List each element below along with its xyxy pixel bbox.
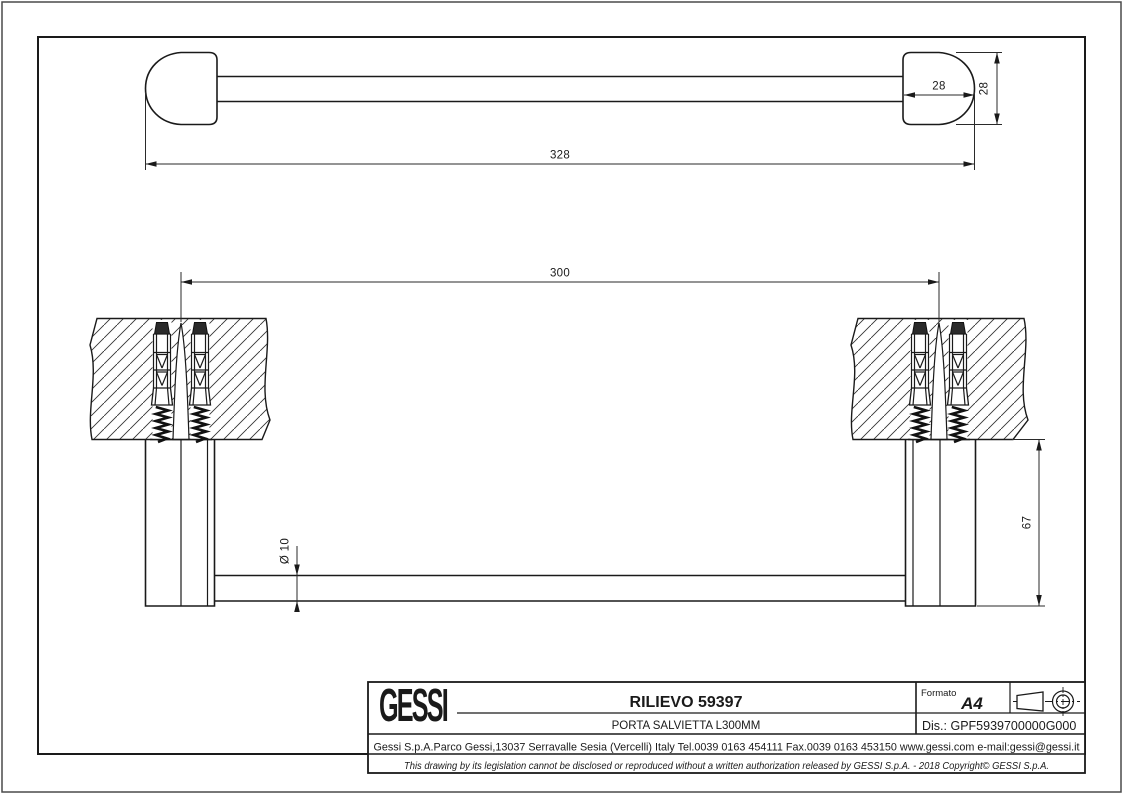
towel-bar-front	[215, 576, 906, 602]
section-view: 300 Ø 10 67	[90, 268, 1045, 613]
wall-section-left	[90, 319, 270, 443]
mounting-post-right	[906, 440, 976, 607]
company-address: Gessi S.p.A.Parco Gessi,13037 Serravalle…	[374, 742, 1080, 754]
endcap-left	[146, 53, 218, 125]
dimension-wall-projection: 67	[977, 440, 1045, 607]
dim-bar-diameter-label: Ø 10	[280, 538, 292, 564]
format-label: Formato	[921, 688, 956, 699]
brand-logo: GESSI	[379, 679, 447, 731]
dimension-overall-length: 328	[146, 92, 975, 170]
dim-endcap-height-label: 28	[979, 82, 991, 95]
dimension-fixing-centers: 300	[181, 268, 939, 323]
dim-wall-projection-label: 67	[1022, 516, 1034, 529]
technical-drawing: 328 28 28	[0, 0, 1123, 794]
dim-overall-length-label: 328	[550, 150, 570, 162]
title-block: GESSI RILIEVO 59397 PORTA SALVIETTA L300…	[368, 679, 1085, 773]
dim-fixing-centers-label: 300	[550, 268, 570, 280]
drawing-subtitle: PORTA SALVIETTA L300MM	[612, 720, 761, 732]
top-view: 328 28 28	[146, 53, 1003, 171]
drawing-title: RILIEVO 59397	[630, 694, 743, 711]
dimension-endcap-width: 28	[904, 81, 975, 98]
dimension-endcap-height: 28	[956, 53, 1002, 125]
dim-endcap-width-label: 28	[932, 81, 945, 93]
mounting-post-left	[146, 440, 215, 607]
drawing-number: Dis.: GPF5939700000G000	[922, 719, 1076, 733]
format-value: A4	[960, 694, 983, 713]
wall-section-right	[851, 319, 1028, 443]
towel-bar-top	[217, 77, 903, 102]
drawing-sheet: 328 28 28	[0, 0, 1123, 794]
legal-disclaimer: This drawing by its legislation cannot b…	[404, 760, 1049, 772]
